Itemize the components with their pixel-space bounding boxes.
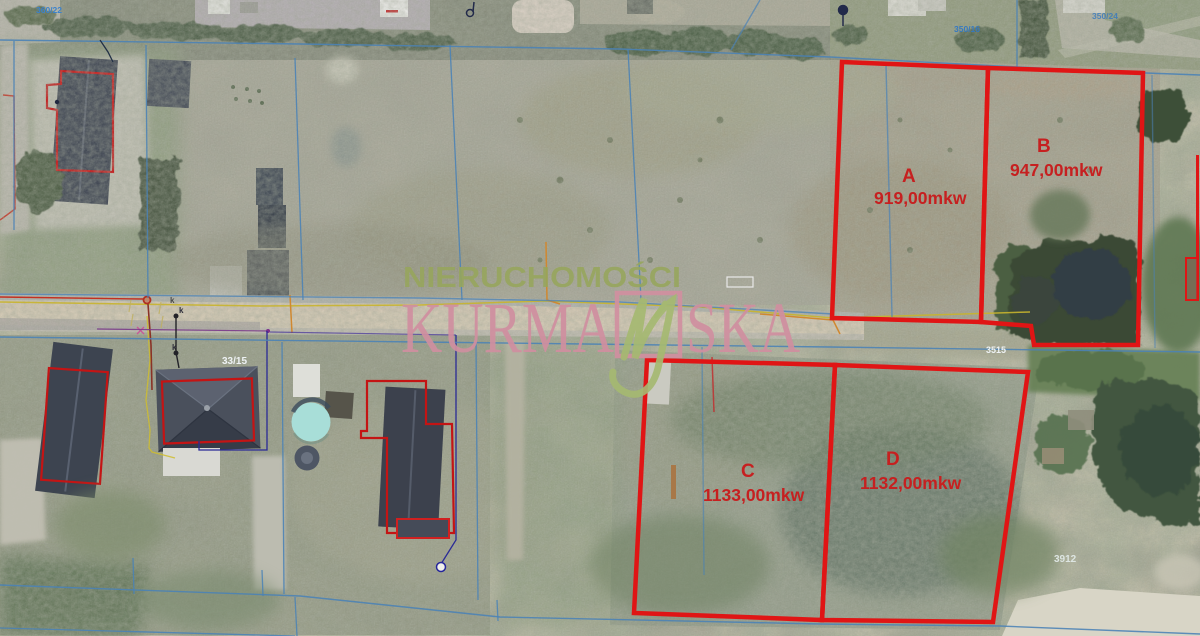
- svg-text:k: k: [170, 296, 175, 305]
- svg-text:360/22: 360/22: [36, 5, 62, 15]
- svg-text:919,00mkw: 919,00mkw: [874, 188, 967, 208]
- svg-text:KURMA: KURMA: [401, 288, 614, 368]
- svg-text:350/24: 350/24: [1092, 11, 1118, 21]
- svg-text:33/15: 33/15: [222, 356, 247, 367]
- svg-text:3515: 3515: [986, 345, 1006, 355]
- svg-text:B: B: [1037, 136, 1051, 157]
- svg-text:350/16: 350/16: [954, 24, 980, 34]
- svg-text:k: k: [179, 306, 184, 315]
- svg-text:A: A: [902, 166, 916, 187]
- svg-text:D: D: [886, 449, 900, 470]
- svg-text:3912: 3912: [1054, 554, 1077, 565]
- svg-text:947,00mkw: 947,00mkw: [1010, 160, 1103, 180]
- svg-text:C: C: [741, 461, 755, 482]
- svg-text:1133,00mkw: 1133,00mkw: [703, 485, 805, 505]
- svg-text:SKA: SKA: [686, 288, 800, 368]
- svg-text:1132,00mkw: 1132,00mkw: [860, 473, 962, 493]
